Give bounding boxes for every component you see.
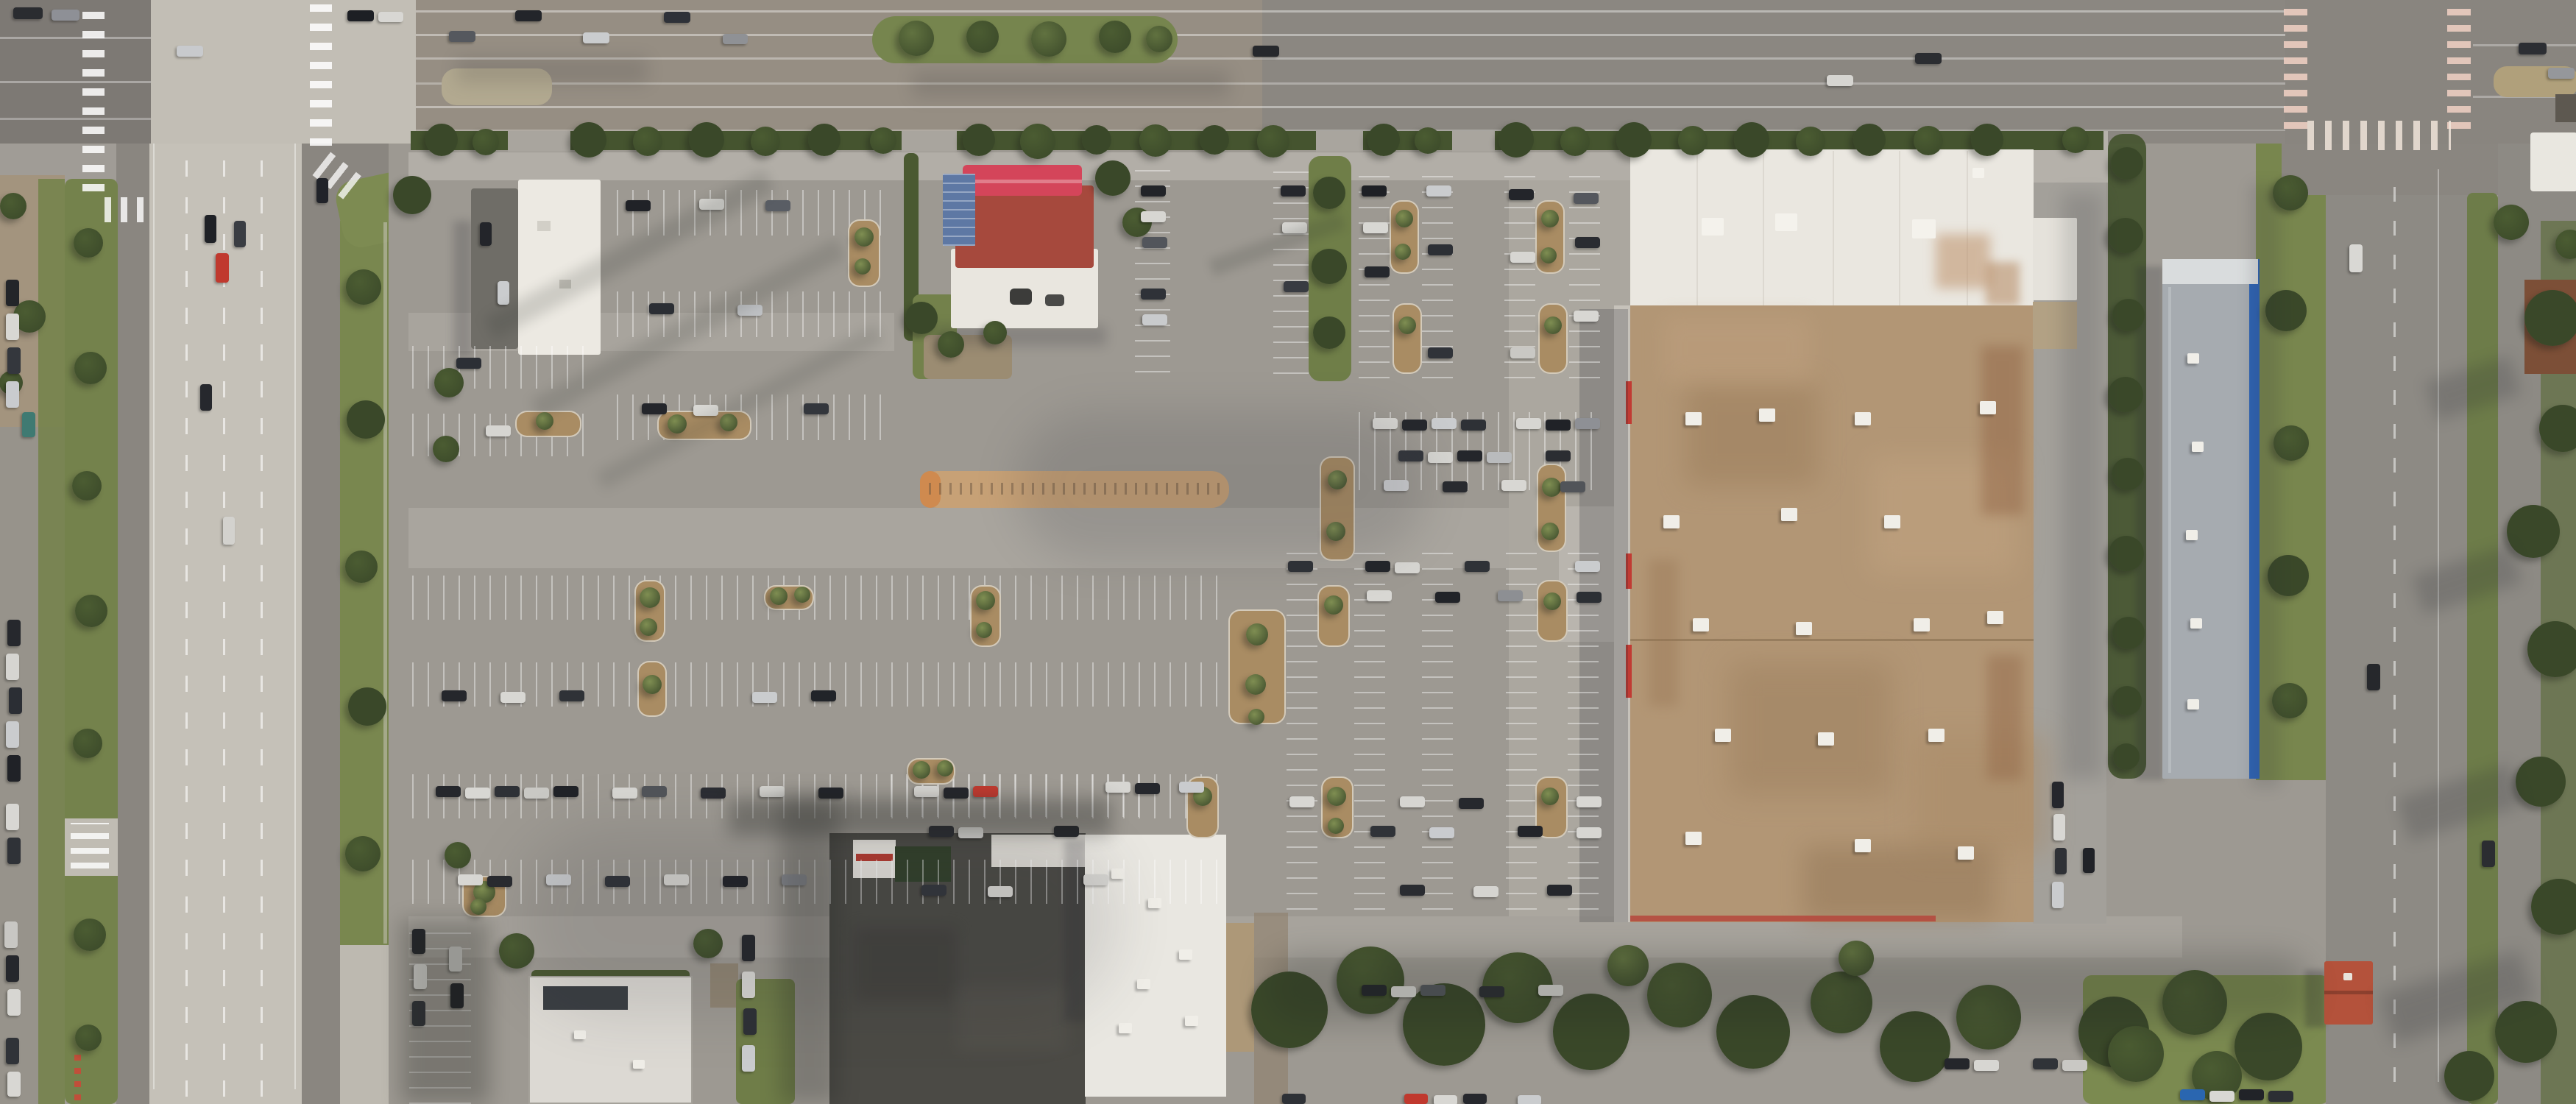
- parked-car: [456, 358, 481, 369]
- rooftop-hvac-unit: [2186, 530, 2198, 540]
- parked-car: [13, 7, 43, 19]
- tree: [425, 124, 458, 156]
- parked-car: [1827, 75, 1853, 86]
- parked-car: [223, 517, 235, 545]
- parked-car: [1487, 452, 1512, 463]
- rooftop-hvac-unit: [1796, 622, 1812, 635]
- intersection-concrete: [151, 0, 416, 144]
- parked-car: [1141, 211, 1166, 222]
- parked-car: [1365, 266, 1390, 277]
- crosswalk: [71, 823, 109, 868]
- rooftop-hvac-unit: [1781, 508, 1797, 521]
- tree: [966, 21, 999, 53]
- lane-line: [0, 118, 151, 120]
- crosswalk-brick: [2307, 121, 2451, 150]
- parked-car: [1974, 1060, 1999, 1071]
- parked-car: [649, 303, 674, 314]
- parked-car: [1289, 796, 1314, 807]
- parked-car: [7, 1072, 21, 1097]
- landscape-island: [1537, 580, 1568, 642]
- tree: [770, 587, 788, 605]
- parked-car: [1510, 252, 1535, 263]
- parked-car: [1465, 561, 1490, 572]
- parked-car: [1546, 450, 1571, 461]
- parked-car: [1915, 53, 1942, 64]
- tree: [1540, 247, 1557, 263]
- parked-car: [1142, 314, 1167, 325]
- parked-car: [1370, 826, 1395, 837]
- tree: [1313, 316, 1345, 349]
- parked-car: [1443, 481, 1468, 492]
- bank-roof-vent: [537, 221, 551, 231]
- tree: [689, 122, 724, 158]
- parked-car: [2548, 68, 2575, 79]
- tan-roof-mottle: [1685, 383, 1818, 486]
- tree: [1246, 623, 1268, 645]
- parked-car: [1547, 885, 1572, 896]
- boulevard-west-lane: [116, 144, 149, 1104]
- roof-rust-streak: [1649, 559, 1678, 707]
- lane-line: [0, 81, 151, 83]
- tree: [2516, 757, 2566, 807]
- tree: [72, 471, 102, 500]
- parked-car: [1518, 826, 1543, 837]
- tree: [854, 227, 874, 247]
- driveway-gap: [1316, 131, 1363, 152]
- tree: [345, 836, 381, 871]
- tree: [1020, 124, 1055, 159]
- parked-car: [6, 804, 19, 830]
- parked-car: [2268, 1091, 2293, 1102]
- tree: [2111, 147, 2143, 180]
- parked-car: [1365, 561, 1390, 572]
- tree: [633, 127, 662, 156]
- parked-car: [1428, 244, 1453, 255]
- arterial-west-lanes: [0, 0, 151, 144]
- parked-car: [2053, 814, 2065, 841]
- west-grass-median: [65, 179, 118, 1104]
- rooftop-hvac-unit: [1914, 618, 1930, 631]
- parked-car: [2055, 848, 2067, 874]
- rooftop-unit: [1702, 218, 1724, 236]
- restaurant-rooftop-unit: [1045, 294, 1064, 306]
- parked-car: [626, 200, 651, 211]
- tree: [905, 302, 938, 334]
- parked-car: [553, 786, 578, 797]
- tan-roof-seam: [1630, 639, 2034, 641]
- parked-car: [2083, 848, 2095, 873]
- tree: [1415, 127, 1441, 154]
- roof-rust-streak: [1987, 655, 2023, 780]
- parking-stalls: [412, 576, 1222, 620]
- tree: [1257, 125, 1289, 158]
- tree: [751, 127, 780, 156]
- parked-car: [1577, 796, 1602, 807]
- parked-car: [642, 403, 667, 414]
- parked-car: [1516, 418, 1541, 429]
- parked-car: [6, 314, 19, 340]
- parked-car: [1459, 798, 1484, 809]
- parked-car: [1288, 561, 1313, 572]
- road-edge-line: [294, 144, 296, 1089]
- parked-car: [177, 46, 203, 57]
- rooftop-hvac-unit: [1715, 729, 1731, 742]
- parking-lot-east: [2256, 780, 2326, 977]
- tree: [74, 228, 103, 258]
- rooftop-hvac-unit: [1111, 868, 1125, 879]
- parked-car: [9, 687, 22, 714]
- tree: [1616, 122, 1652, 158]
- tree: [1146, 26, 1172, 52]
- tree-row-shadow: [1266, 954, 2311, 1024]
- blue-building-north-cap: [2162, 259, 2258, 284]
- tree: [1328, 818, 1344, 834]
- tree: [1248, 709, 1264, 725]
- tree: [75, 1025, 102, 1051]
- rooftop-unit: [1775, 213, 1797, 231]
- tree: [640, 587, 660, 608]
- corner-canopy-building: [2530, 132, 2576, 191]
- tree: [2112, 617, 2145, 649]
- parked-car: [1435, 592, 1460, 603]
- parked-car: [465, 788, 490, 799]
- hedge-shadow: [2062, 193, 2103, 779]
- parked-car: [612, 788, 637, 799]
- tree: [2109, 536, 2144, 571]
- parked-car: [723, 34, 748, 44]
- parked-car: [1400, 796, 1425, 807]
- tan-roof-mottle: [1663, 316, 1811, 383]
- shadow-cloud: [1016, 412, 1428, 559]
- boulevard-lane-dashes: [185, 155, 188, 1097]
- tree: [2507, 505, 2560, 558]
- parked-car: [442, 690, 467, 701]
- parked-car: [2367, 664, 2380, 690]
- driveway-gap: [508, 131, 570, 152]
- tree: [74, 352, 107, 384]
- tree: [1678, 126, 1708, 155]
- fire-lane-dashes: [74, 1049, 81, 1100]
- tree: [1853, 124, 1886, 156]
- tree: [445, 842, 471, 868]
- parked-car: [1179, 782, 1204, 793]
- sidewalk-line: [383, 222, 387, 944]
- verge-shadow: [2251, 184, 2280, 788]
- tree: [643, 675, 662, 694]
- parked-car: [2239, 1089, 2264, 1100]
- tree: [1398, 316, 1416, 334]
- parked-car: [642, 786, 667, 797]
- tree: [1313, 177, 1345, 209]
- parked-car: [2062, 1060, 2087, 1071]
- rooftop-unit: [1972, 168, 1984, 178]
- tan-strip-building: [1226, 923, 1254, 1052]
- parked-car: [752, 692, 777, 703]
- parked-car: [2052, 782, 2064, 808]
- parked-car: [7, 755, 21, 782]
- parked-car: [347, 10, 374, 21]
- parked-car: [6, 381, 19, 408]
- parked-car: [6, 721, 19, 748]
- tree: [1560, 127, 1590, 156]
- rooftop-hvac-unit: [1179, 949, 1192, 960]
- restaurant-brick-roof: [955, 185, 1094, 268]
- tree: [1200, 125, 1229, 155]
- tree: [1541, 523, 1559, 540]
- parked-car: [1402, 420, 1427, 431]
- restaurant-rooftop-unit: [1010, 289, 1032, 305]
- blue-building-roof-line: [2168, 287, 2171, 773]
- store-red-base-line: [1630, 916, 1936, 921]
- parked-car: [914, 786, 939, 797]
- tree: [2444, 1051, 2494, 1101]
- parked-car: [811, 690, 836, 701]
- parked-car: [500, 692, 526, 703]
- parked-car: [1284, 281, 1309, 292]
- parked-car: [316, 178, 328, 203]
- parked-car: [742, 1045, 755, 1072]
- satellite-map-view: [0, 0, 2576, 1104]
- tan-roof-mottle: [1730, 662, 1892, 795]
- parked-car: [495, 786, 520, 797]
- parked-car: [1518, 1095, 1541, 1104]
- tree: [1082, 125, 1111, 155]
- tree: [74, 919, 106, 951]
- tree: [1312, 249, 1347, 284]
- roof-seam: [1833, 151, 1834, 305]
- parked-car: [1509, 189, 1534, 200]
- crosswalk: [310, 0, 332, 146]
- parked-car: [7, 347, 21, 374]
- parked-car: [1135, 783, 1160, 794]
- roof-seam: [1696, 151, 1698, 305]
- parked-car: [6, 1038, 19, 1064]
- parked-car: [458, 874, 483, 885]
- rooftop-hvac-unit: [1884, 515, 1900, 528]
- right-road-lane-line: [2438, 169, 2439, 1082]
- tree: [0, 193, 26, 219]
- parked-car: [486, 425, 511, 436]
- bank-shadow: [453, 221, 473, 357]
- landscape-island: [1317, 585, 1350, 647]
- tree: [2112, 458, 2144, 490]
- tree: [2112, 686, 2142, 715]
- rooftop-hvac-unit: [2187, 353, 2199, 364]
- parked-car: [6, 280, 19, 306]
- tree: [808, 124, 841, 156]
- tree: [393, 176, 431, 214]
- parked-car: [6, 654, 19, 680]
- parked-car: [1574, 311, 1599, 322]
- tree: [938, 331, 964, 358]
- tree: [434, 368, 464, 397]
- tree: [473, 129, 499, 155]
- red-hut-ridge: [2324, 991, 2373, 994]
- parked-car: [1362, 185, 1387, 197]
- rooftop-unit: [1912, 219, 1936, 238]
- rooftop-hvac-unit: [1928, 729, 1945, 742]
- tree: [2527, 621, 2576, 677]
- landscape-island: [1538, 303, 1568, 374]
- tree: [2524, 290, 2576, 346]
- lane-line: [416, 10, 2285, 13]
- tree: [1324, 595, 1343, 615]
- parked-car: [1141, 185, 1166, 197]
- rooftop-hvac-unit: [1685, 832, 1702, 845]
- parked-car: [1404, 1094, 1428, 1104]
- parked-car: [378, 12, 403, 22]
- parked-car: [1400, 885, 1425, 896]
- parked-car: [1574, 193, 1599, 204]
- right-road-dashes: [2393, 169, 2396, 1082]
- parked-car: [1501, 480, 1526, 491]
- parked-car: [2180, 1089, 2205, 1100]
- parked-car: [1560, 481, 1585, 492]
- tree: [1796, 127, 1825, 156]
- driveway-gap: [1452, 131, 1495, 152]
- tree: [1245, 674, 1266, 695]
- roof-rust-stain: [1936, 234, 1990, 289]
- parked-car: [664, 12, 690, 23]
- right-road: [2326, 144, 2470, 1104]
- tree: [794, 587, 810, 603]
- tree: [346, 269, 381, 305]
- rooftop-hvac-unit: [633, 1060, 645, 1069]
- tree: [1542, 478, 1561, 497]
- stall-tree-shadow: [401, 920, 489, 1104]
- tree: [2495, 1001, 2557, 1063]
- rooftop-hvac-unit: [1958, 846, 1974, 860]
- parked-car: [7, 838, 21, 864]
- boulevard-east-lane: [302, 226, 340, 1104]
- parked-car: [1575, 237, 1600, 248]
- tree: [913, 761, 930, 779]
- parked-car: [944, 788, 969, 799]
- parked-car: [1253, 46, 1279, 57]
- parked-car: [1461, 420, 1486, 431]
- roof-rust-streak: [1981, 346, 2024, 515]
- lane-line: [416, 34, 2285, 36]
- parked-car: [1429, 827, 1454, 838]
- rooftop-hvac-unit: [1987, 611, 2003, 624]
- tree: [1099, 21, 1131, 53]
- parked-car: [2482, 841, 2495, 867]
- parked-car: [22, 412, 35, 437]
- parked-car: [2052, 882, 2064, 908]
- parked-car: [1428, 347, 1453, 358]
- parked-car: [1577, 592, 1602, 603]
- tree: [870, 127, 896, 154]
- parked-car: [524, 788, 549, 799]
- arterial-east-lanes: [1262, 0, 2285, 144]
- parking-stalls-column: [1273, 168, 1309, 374]
- tree: [73, 729, 102, 758]
- tree: [1498, 122, 1534, 158]
- tree: [937, 760, 953, 776]
- parked-car: [1575, 561, 1600, 572]
- tree: [976, 591, 995, 610]
- parked-car: [559, 690, 584, 701]
- parking-stalls-column: [1287, 542, 1317, 910]
- rooftop-hvac-unit: [1148, 898, 1161, 908]
- parked-car: [6, 955, 19, 982]
- tree: [1395, 244, 1411, 260]
- tree: [976, 622, 992, 638]
- crosswalk-brick: [2284, 0, 2307, 129]
- blue-building: [2162, 259, 2258, 779]
- parked-car: [804, 403, 829, 414]
- tree: [345, 551, 378, 583]
- tree: [2108, 1026, 2164, 1082]
- parked-car: [583, 32, 609, 43]
- parked-car: [200, 384, 212, 411]
- parked-car: [765, 200, 790, 211]
- road-edge-line: [153, 144, 155, 1089]
- parked-car: [515, 10, 542, 21]
- corner-small-structure: [2555, 94, 2576, 122]
- parked-car: [973, 786, 998, 797]
- parked-car: [436, 786, 461, 797]
- rooftop-hvac-unit: [2187, 699, 2199, 710]
- rooftop-hvac-unit: [1818, 732, 1834, 746]
- parked-car: [1432, 418, 1457, 429]
- tree: [470, 899, 486, 915]
- tree: [347, 400, 385, 439]
- tree: [854, 258, 871, 275]
- parked-car: [498, 281, 509, 305]
- tree-shadow-arterial: [913, 71, 1229, 97]
- tree: [2108, 377, 2143, 412]
- crosswalk: [105, 197, 153, 222]
- parked-car: [4, 921, 18, 948]
- parked-car: [1142, 237, 1167, 248]
- parked-car: [1367, 590, 1392, 601]
- parked-car: [1546, 420, 1571, 431]
- parked-car: [2033, 1058, 2058, 1069]
- parked-car: [7, 620, 21, 646]
- boulevard-concrete: [149, 144, 302, 1104]
- tree: [2113, 743, 2140, 770]
- parked-car: [2519, 43, 2547, 54]
- tree: [1395, 210, 1413, 227]
- rooftop-hvac-unit: [1693, 618, 1709, 631]
- tree: [983, 321, 1007, 344]
- tan-roof-mottle: [1914, 736, 2046, 854]
- rooftop-hvac-unit: [1185, 1016, 1198, 1026]
- rooftop-hvac-unit: [2192, 442, 2204, 452]
- lane-line: [416, 106, 2285, 108]
- tree: [2494, 205, 2529, 240]
- parked-car: [701, 788, 726, 799]
- parked-car: [1363, 222, 1388, 233]
- parked-car: [1577, 827, 1602, 838]
- parked-car: [1428, 452, 1453, 463]
- tree-shadow-arterial: [456, 57, 648, 84]
- tree: [348, 687, 386, 726]
- tree: [1914, 126, 1943, 155]
- parked-car: [1575, 418, 1600, 429]
- crosswalk: [82, 0, 105, 191]
- parked-car: [1473, 886, 1498, 897]
- tree: [75, 595, 107, 627]
- rooftop-hvac-unit: [1855, 412, 1871, 425]
- landscape-island: [1393, 303, 1422, 374]
- parked-car: [1141, 289, 1166, 300]
- tree: [2112, 299, 2145, 331]
- red-hut-vent: [2343, 973, 2352, 980]
- solar-panel-lines: [943, 174, 975, 246]
- parked-car: [7, 989, 21, 1016]
